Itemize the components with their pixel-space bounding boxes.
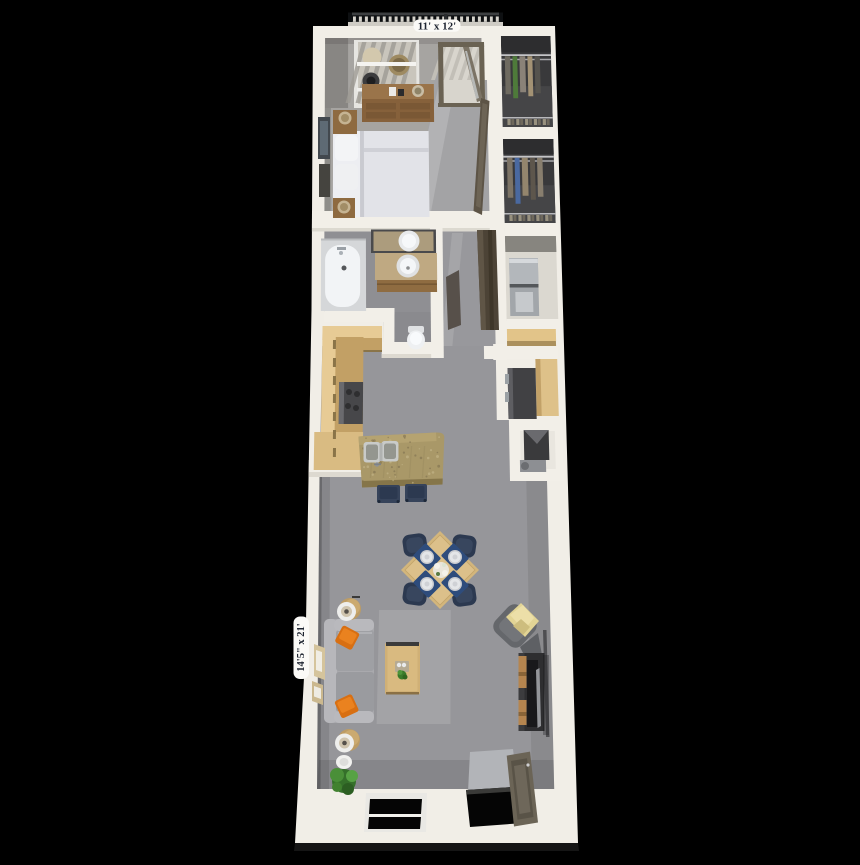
svg-text:11' x 12': 11' x 12': [418, 20, 457, 32]
svg-text:14'5" x 21': 14'5" x 21': [296, 623, 307, 671]
